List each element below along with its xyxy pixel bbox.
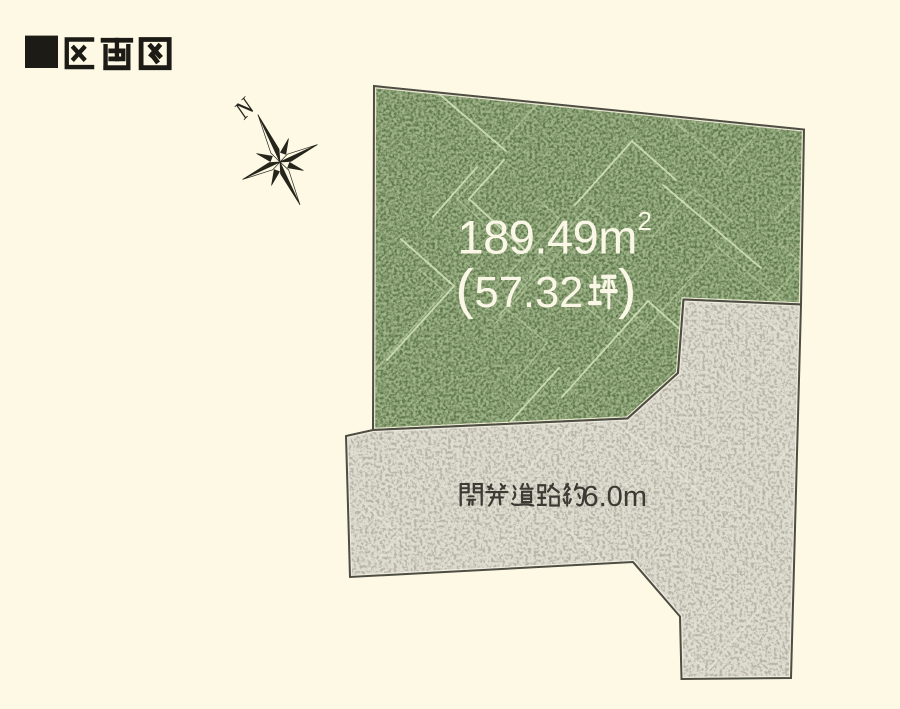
svg-text:): ) (618, 258, 636, 320)
svg-text:2: 2 (638, 206, 652, 236)
svg-text:(: ( (456, 258, 474, 320)
svg-text:6.0m: 6.0m (583, 481, 647, 513)
svg-text:189.49m: 189.49m (458, 211, 637, 264)
svg-text:57.32: 57.32 (475, 269, 584, 317)
